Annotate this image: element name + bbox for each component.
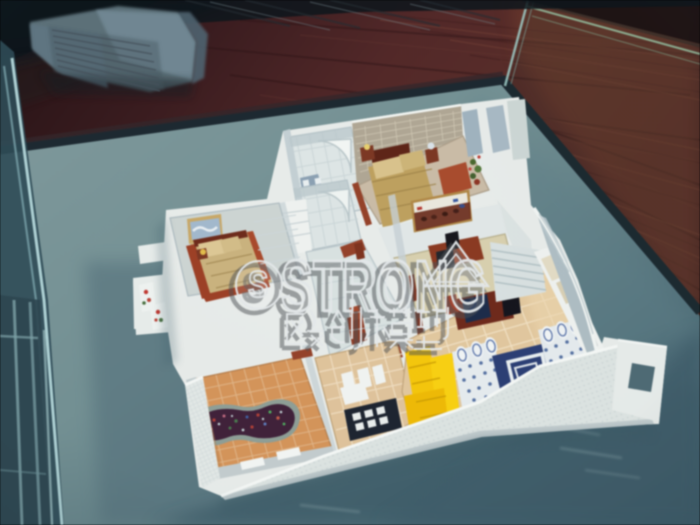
svg-text:S: S: [248, 264, 268, 306]
